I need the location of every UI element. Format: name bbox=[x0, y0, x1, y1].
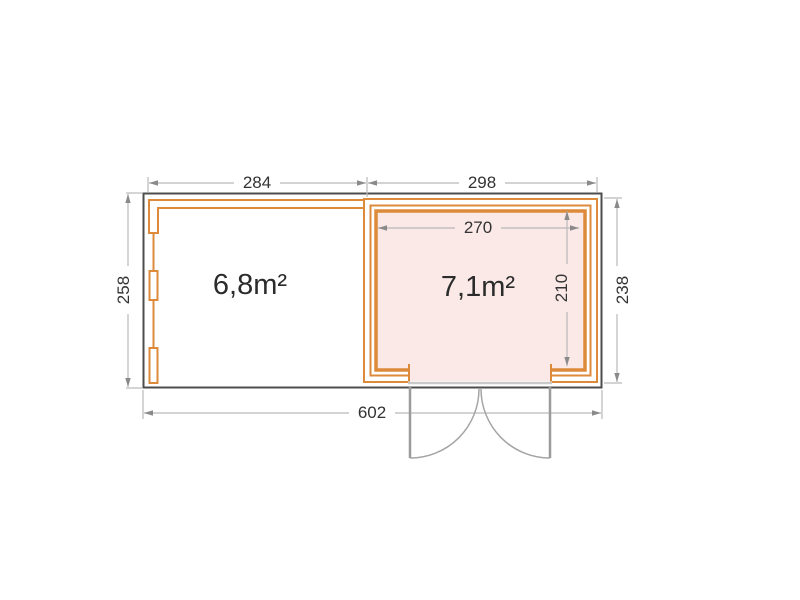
floor-plan-page: 602 284 298 258 bbox=[0, 0, 800, 600]
dim-label-top-left: 284 bbox=[243, 173, 271, 192]
right-room-area-label: 7,1m² bbox=[441, 271, 515, 303]
arrowhead bbox=[144, 410, 153, 415]
dim-total-width: 602 bbox=[143, 390, 602, 422]
arrowhead bbox=[368, 180, 377, 185]
arrowhead bbox=[125, 194, 130, 203]
arrowhead bbox=[587, 180, 596, 185]
dim-label-top-right: 298 bbox=[468, 173, 496, 192]
dim-label-inner-depth: 210 bbox=[552, 274, 571, 302]
left-wall-post bbox=[150, 348, 158, 383]
dim-label-total-width: 602 bbox=[358, 403, 386, 422]
arrowhead bbox=[357, 180, 366, 185]
double-door bbox=[410, 387, 550, 458]
left-wall-post bbox=[150, 271, 158, 300]
arrowhead bbox=[592, 410, 601, 415]
door-swing-left bbox=[410, 389, 479, 458]
dim-left-depth: 258 bbox=[114, 193, 142, 388]
arrowhead bbox=[149, 180, 158, 185]
dim-label-inner-width: 270 bbox=[464, 218, 492, 237]
dim-label-left-depth: 258 bbox=[114, 276, 133, 304]
dim-top-right: 298 bbox=[368, 173, 597, 192]
arrowhead bbox=[125, 378, 130, 387]
left-room-area-label: 6,8m² bbox=[213, 269, 287, 301]
arrowhead bbox=[614, 373, 619, 382]
dim-label-right-depth: 238 bbox=[613, 276, 632, 304]
dim-right-depth: 238 bbox=[604, 198, 632, 383]
door-swing-right bbox=[481, 389, 550, 458]
arrowhead bbox=[614, 199, 619, 208]
floor-plan: 602 284 298 258 bbox=[0, 0, 800, 600]
door-opening-floor bbox=[408, 364, 552, 381]
